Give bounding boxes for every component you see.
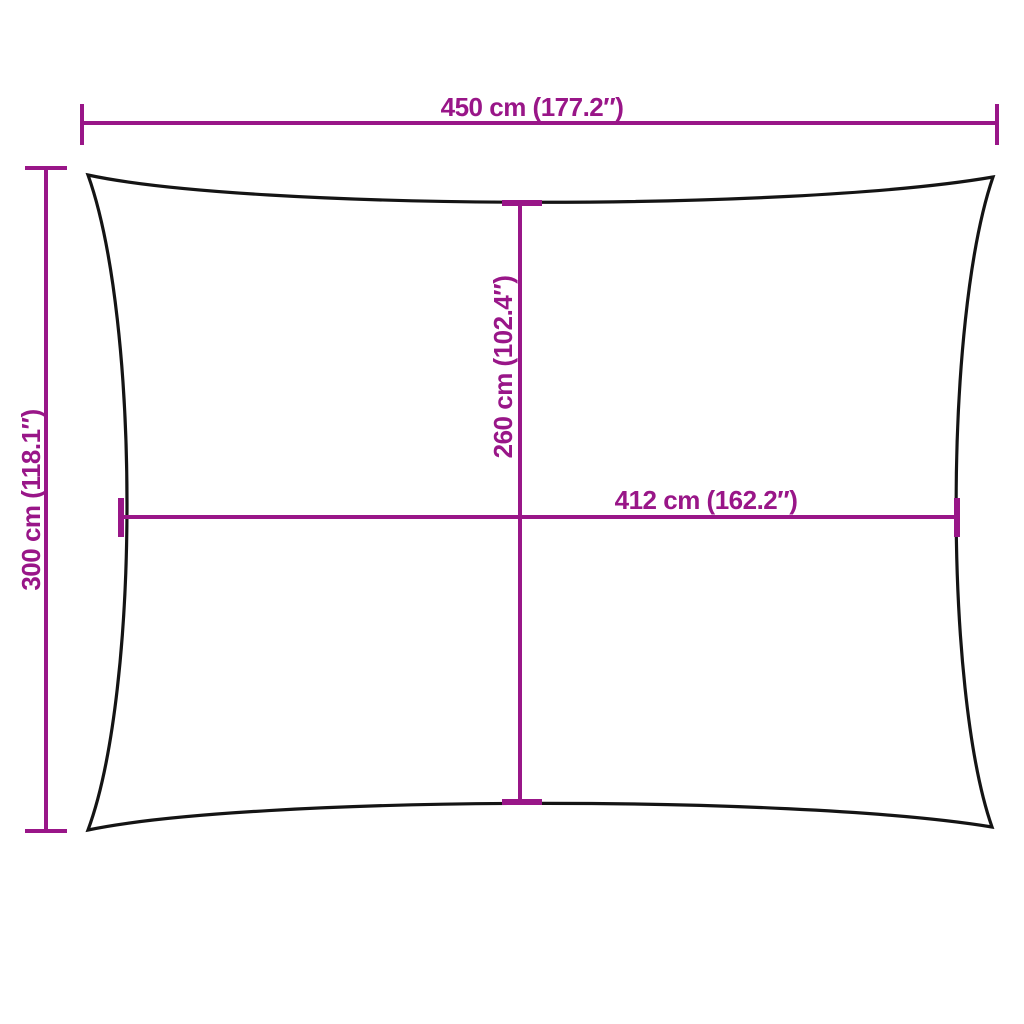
sail-outline-shape — [88, 175, 993, 830]
diagram-canvas: 450 cm (177.2″) 300 cm (118.1″) 260 cm (… — [0, 0, 1024, 1024]
inner-width-label: 412 cm (162.2″) — [615, 485, 798, 515]
overall-width-label: 450 cm (177.2″) — [441, 92, 624, 122]
inner-height-label: 260 cm (102.4″) — [488, 276, 518, 459]
shade-sail-dimension-diagram: 450 cm (177.2″) 300 cm (118.1″) 260 cm (… — [0, 0, 1024, 1024]
overall-height-label: 300 cm (118.1″) — [16, 409, 46, 590]
